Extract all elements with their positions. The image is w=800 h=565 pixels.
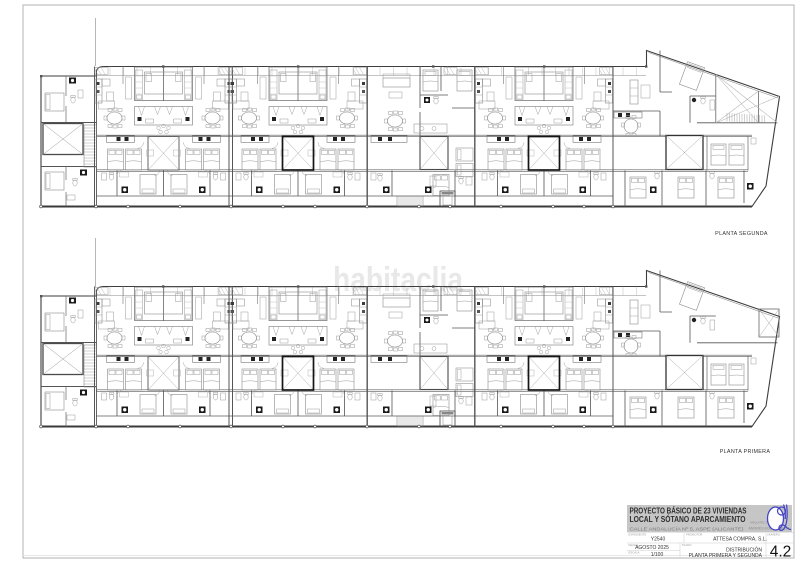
svg-text:NÚMERO: NÚMERO — [768, 532, 781, 537]
svg-text:PLANTA PRIMERA Y SEGUNDA: PLANTA PRIMERA Y SEGUNDA — [689, 553, 763, 559]
svg-text:PLANTA PRIMERA: PLANTA PRIMERA — [720, 449, 771, 455]
svg-text:PLANTA SEGUNDA: PLANTA SEGUNDA — [715, 231, 768, 237]
svg-text:AGOSTO 2025: AGOSTO 2025 — [635, 545, 669, 551]
svg-text:4.2: 4.2 — [770, 544, 792, 561]
svg-text:PROMOTOR: PROMOTOR — [686, 533, 702, 537]
svg-text:1/100: 1/100 — [651, 552, 664, 558]
svg-text:Y2540: Y2540 — [651, 537, 666, 543]
svg-text:PLANO: PLANO — [682, 543, 692, 547]
svg-text:LOCAL Y SÓTANO APARCAMIENTO: LOCAL Y SÓTANO APARCAMIENTO — [630, 513, 746, 524]
svg-text:ATTESA COMPRA, S.L.: ATTESA COMPRA, S.L. — [713, 537, 767, 543]
svg-text:EXPEDIENTE: EXPEDIENTE — [629, 533, 647, 537]
svg-text:CALLE ANDALUCÍA Nº 5, ASPE (AL: CALLE ANDALUCÍA Nº 5, ASPE (ALICANTE) — [630, 526, 744, 533]
svg-text:ESCALA: ESCALA — [629, 551, 640, 555]
svg-text:habitaclia: habitaclia — [333, 261, 464, 299]
